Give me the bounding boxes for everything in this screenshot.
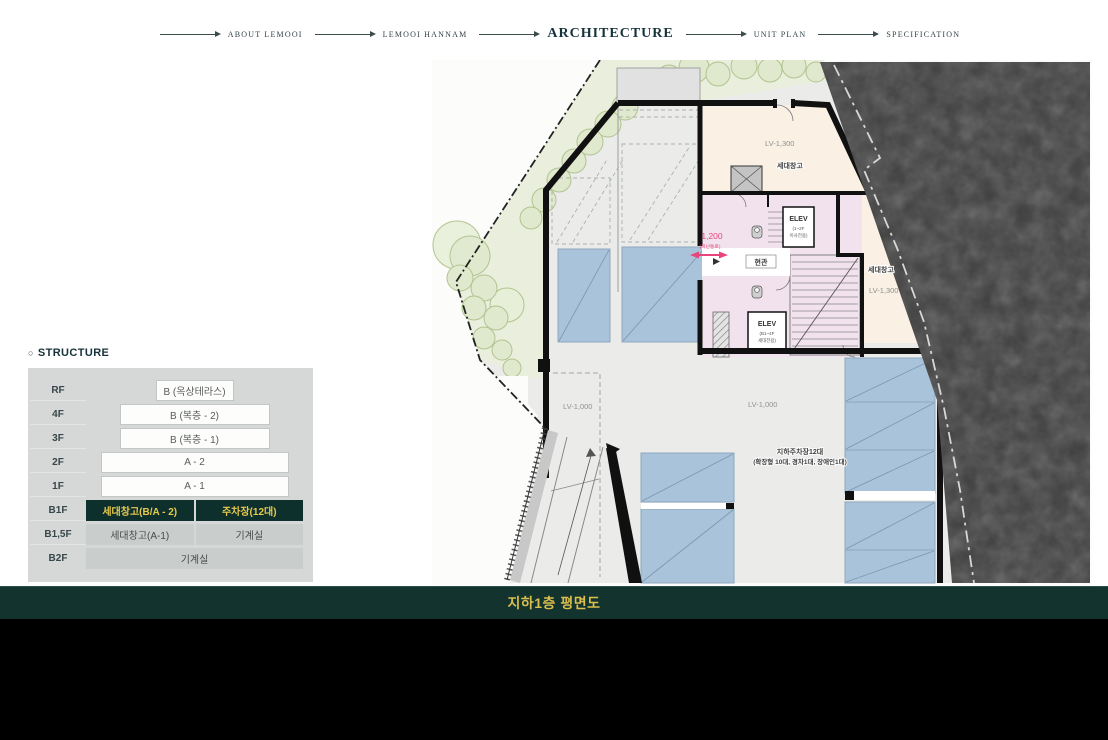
- structure-heading: ○ STRUCTURE: [28, 347, 313, 359]
- table-cell-highlight: 주차장(12대): [196, 500, 304, 521]
- table-row-4f: 4F B (복층 - 2): [30, 404, 303, 425]
- elev-top-label: ELEV: [789, 216, 808, 223]
- nav-arrow-line: [315, 34, 371, 35]
- table-row-3f: 3F B (복층 - 1): [30, 428, 303, 449]
- top-navigation: ABOUT LEMOOI LEMOOI HANNAM ARCHITECTURE …: [0, 22, 1108, 46]
- level-label: LV-1,000: [563, 402, 592, 411]
- floor-label: B1,5F: [30, 524, 86, 545]
- table-row-b1f: B1F 세대창고(B/A - 2) 주차장(12대): [30, 500, 303, 521]
- dimension-value: 1,200: [701, 231, 723, 241]
- table-cell: A - 2: [101, 452, 289, 473]
- table-cell: A - 1: [101, 476, 289, 497]
- elevator-bottom: ELEV (B1~4F 세대전용): [748, 312, 786, 352]
- floor-label: 1F: [30, 476, 86, 497]
- table-cell: B (복층 - 2): [120, 404, 270, 425]
- table-cell: B (복층 - 1): [120, 428, 270, 449]
- elevator-top: ELEV (1~2F 이사전용): [783, 207, 814, 247]
- table-cell: 기계실: [196, 524, 304, 545]
- level-label: LV-1,300: [765, 139, 794, 148]
- floor-label: B1F: [30, 500, 86, 521]
- nav-item-lemooi-hannam[interactable]: LEMOOI HANNAM: [383, 30, 468, 39]
- table-row-b15f: B1,5F 세대창고(A-1) 기계실: [30, 524, 303, 545]
- floor-label: 4F: [30, 404, 86, 425]
- table-row-rf: RF B (옥상테라스): [30, 380, 303, 401]
- nav-item-specification[interactable]: SPECIFICATION: [886, 30, 960, 39]
- bottom-black-area: [0, 619, 1108, 740]
- elev-bottom-sub2: 세대전용): [758, 337, 777, 344]
- floor-label: B2F: [30, 548, 86, 569]
- nav-item-about-lemooi[interactable]: ABOUT LEMOOI: [228, 30, 303, 39]
- room-label-storage-a: 세대창고: [777, 161, 803, 170]
- table-cell: B (옥상테라스): [156, 380, 234, 401]
- table-cell-highlight: 세대창고(B/A - 2): [86, 500, 194, 521]
- dimension-note: (피난통로): [700, 243, 721, 250]
- table-cell: 세대창고(A-1): [86, 524, 194, 545]
- page-title: 지하1층 평면도: [508, 593, 601, 613]
- nav-item-architecture[interactable]: ARCHITECTURE: [547, 26, 673, 42]
- structure-table: RF B (옥상테라스) 4F B (복층 - 2) 3F B (복층 - 1)…: [28, 368, 313, 582]
- floor-plan-drawing: ELEV (1~2F 이사전용) ELEV (B1~4F 세대전용): [432, 60, 1092, 585]
- table-cell: 기계실: [86, 548, 303, 569]
- entry-canopy: [617, 68, 700, 103]
- elev-bottom-sub1: (B1~4F: [760, 331, 775, 336]
- elev-top-sub1: (1~2F: [793, 226, 805, 231]
- shaft-box: [731, 166, 762, 192]
- page-title-bar: 지하1층 평면도: [0, 586, 1108, 619]
- nav-item-unit-plan[interactable]: UNIT PLAN: [754, 30, 807, 39]
- table-row-2f: 2F A - 2: [30, 452, 303, 473]
- nav-arrow-line: [479, 34, 535, 35]
- floor-label: RF: [30, 380, 86, 401]
- structure-panel: ○ STRUCTURE RF B (옥상테라스) 4F B (복층 - 2) 3…: [28, 347, 313, 582]
- level-label: LV-1,000: [748, 400, 777, 409]
- elev-top-sub2: 이사전용): [789, 232, 808, 239]
- elev-bottom-label: ELEV: [758, 321, 777, 328]
- nav-arrow-line: [686, 34, 742, 35]
- table-row-1f: 1F A - 1: [30, 476, 303, 497]
- nav-arrow-line: [160, 34, 216, 35]
- structure-heading-label: STRUCTURE: [38, 347, 109, 359]
- room-label-storage-b: 세대창고: [868, 265, 894, 274]
- level-label: LV-1,300: [869, 286, 898, 295]
- nav-arrow-line: [818, 34, 874, 35]
- parking-count-note: 지하주차장12대: [777, 447, 823, 456]
- circle-bullet-icon: ○: [28, 348, 34, 358]
- table-row-b2f: B2F 기계실: [30, 548, 303, 569]
- floor-label: 3F: [30, 428, 86, 449]
- entrance-label: 현관: [755, 258, 768, 267]
- parking-count-detail: (확장형 10대, 경차1대, 장애인1대): [753, 457, 847, 466]
- floor-label: 2F: [30, 452, 86, 473]
